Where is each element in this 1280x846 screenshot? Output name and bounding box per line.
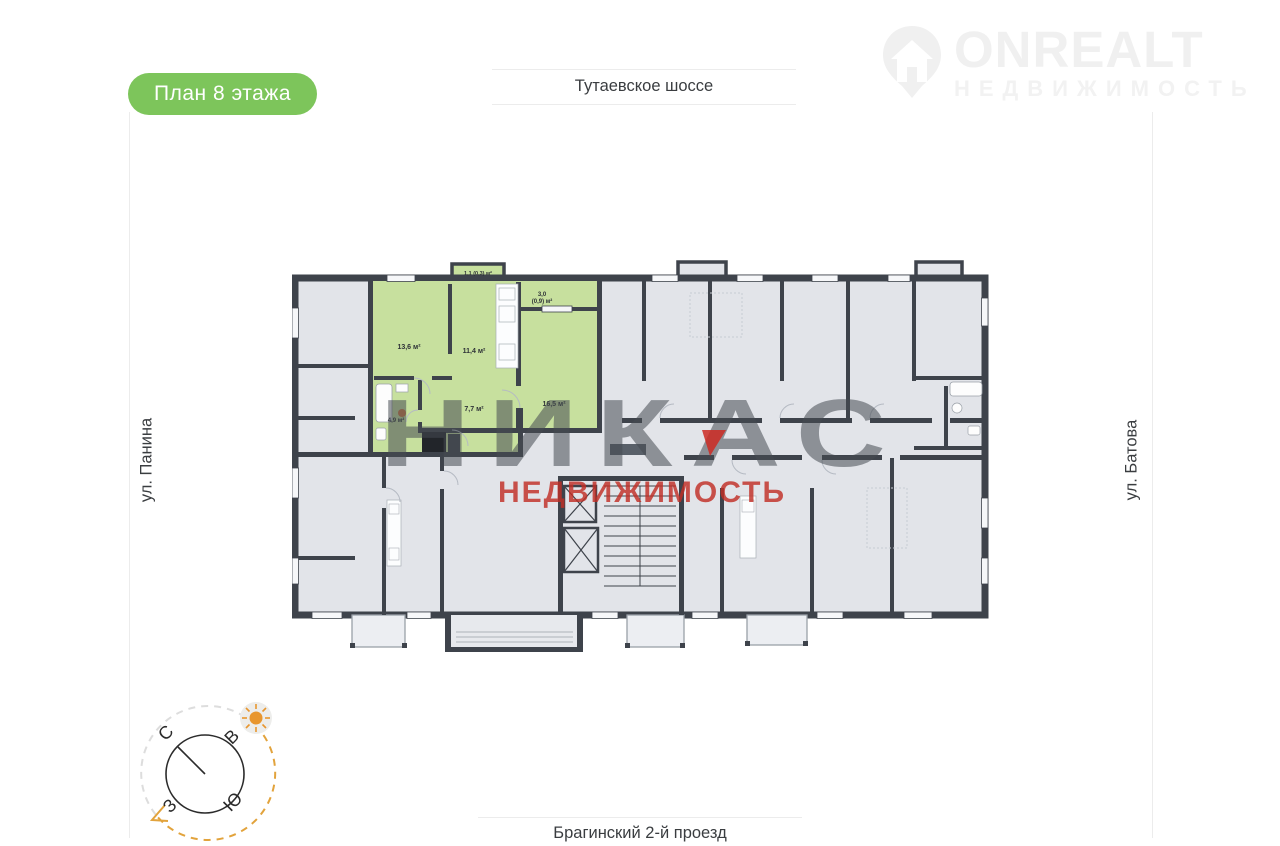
street-label-left: ул. Панина [138,418,157,502]
room-area-label: 13,6 м² [397,344,421,351]
hallway-area-label: 7,7 м² [464,406,484,413]
loggia-area-label-1: 3,0 [538,292,547,298]
kitchen-area-label: 11,4 м² [463,348,486,355]
street-label-bottom: Брагинский 2-й проезд [478,817,802,843]
compass-north-label: С [154,721,177,744]
balcony-area-label: 1,1 (0,3) м² [464,270,492,277]
living-room-area-label: 16,5 м² [542,401,566,408]
bathroom-area-label: 4,9 м² [388,417,404,424]
floor-badge[interactable]: План 8 этажа [128,73,317,115]
floor-plan: 13,6 м² 11,4 м² 7,7 м² 16,5 м² 4,9 м² 1,… [292,258,992,658]
logo-title: ONREALT [954,24,1256,75]
map-pin-house-icon [880,24,944,110]
loggia-area-label-2: (0,9) м² [532,298,552,305]
street-label-right: ул. Батова [1123,420,1142,501]
logo-subtitle: НЕДВИЖИМОСТЬ [954,76,1256,102]
location-marker-dot [398,409,406,417]
street-label-top: Тутаевское шоссе [492,69,796,105]
compass: С В З Ю [123,688,298,846]
elevator-shafts [564,486,598,572]
highlighted-apartment[interactable]: 13,6 м² 11,4 м² 7,7 м² 16,5 м² 4,9 м² 1,… [368,270,602,457]
street-line-right [1152,112,1153,838]
sun-icon [240,702,272,734]
onrealt-logo: ONREALT НЕДВИЖИМОСТЬ [880,24,1256,110]
